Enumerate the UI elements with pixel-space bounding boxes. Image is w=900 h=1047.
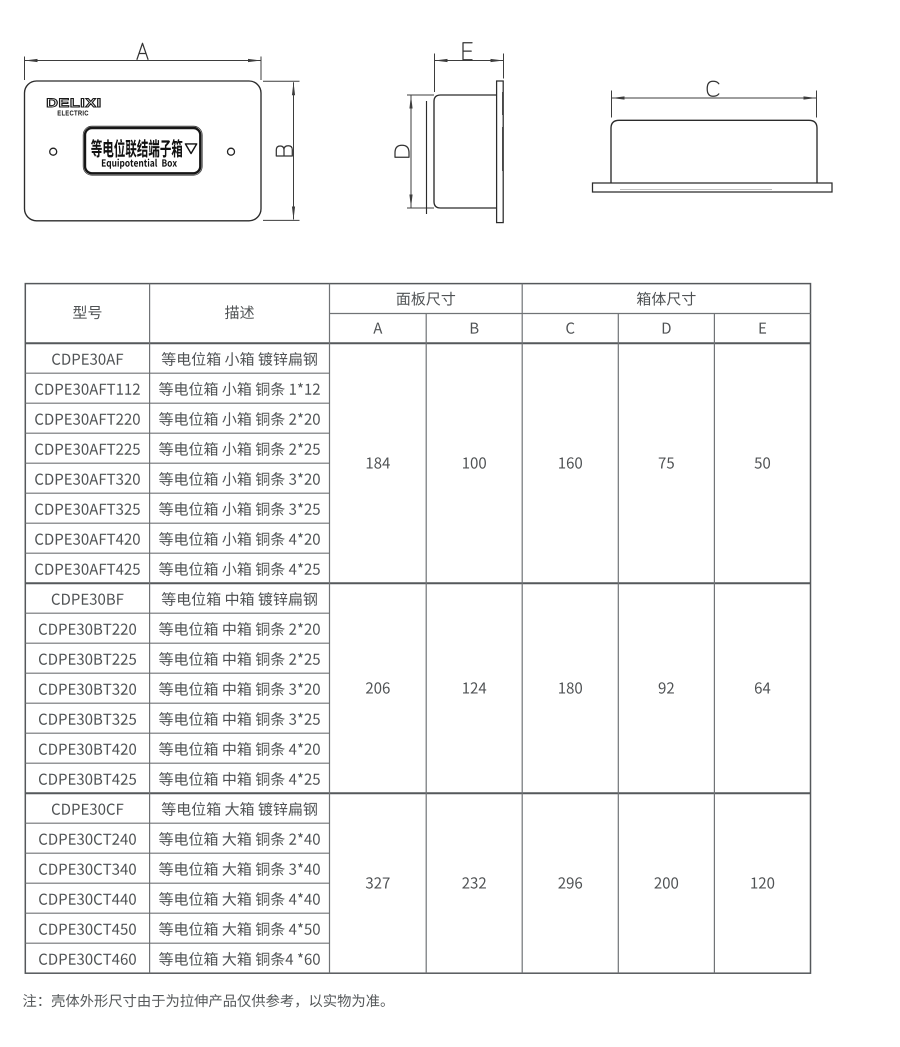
svg-text:DELIXI: DELIXI: [46, 97, 101, 110]
svg-text:ELECTRIC: ELECTRIC: [57, 110, 88, 118]
